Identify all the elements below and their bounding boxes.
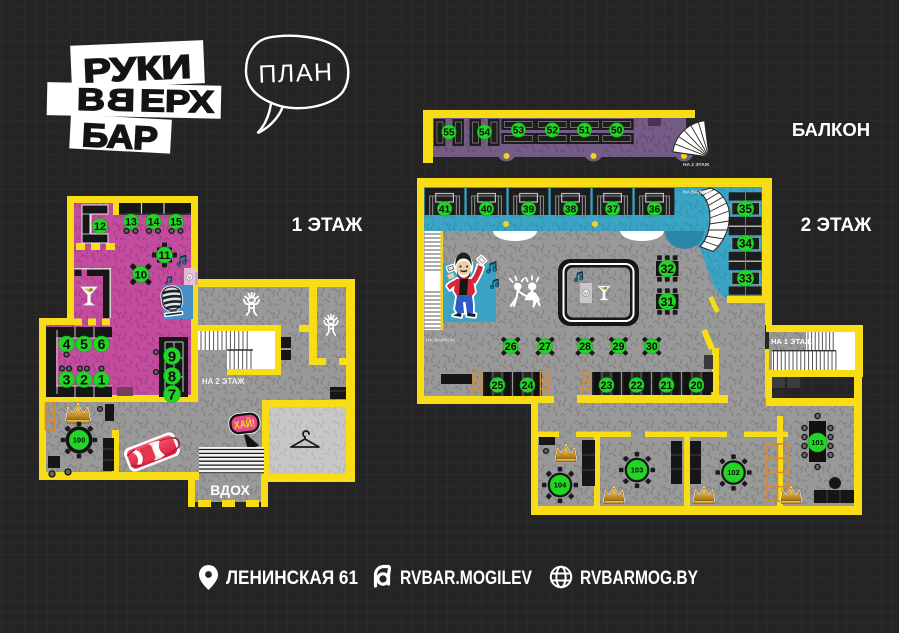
svg-text:В: В bbox=[107, 82, 136, 118]
svg-text:104: 104 bbox=[554, 481, 567, 490]
svg-text:52: 52 bbox=[547, 126, 559, 137]
svg-text:23: 23 bbox=[601, 380, 613, 392]
svg-text:50: 50 bbox=[611, 126, 623, 137]
svg-text:34: 34 bbox=[739, 238, 752, 251]
svg-text:БАР: БАР bbox=[81, 116, 159, 157]
svg-text:8: 8 bbox=[168, 369, 176, 385]
svg-text:НА БАЛКОН: НА БАЛКОН bbox=[426, 338, 455, 344]
svg-text:51: 51 bbox=[579, 126, 591, 137]
svg-text:НА БАЛКОН: НА БАЛКОН bbox=[683, 190, 712, 196]
svg-text:29: 29 bbox=[613, 341, 625, 353]
svg-text:53: 53 bbox=[513, 126, 525, 137]
svg-text:20: 20 bbox=[691, 380, 703, 392]
svg-text:ЛЕНИНСКАЯ 61: ЛЕНИНСКАЯ 61 bbox=[226, 568, 358, 589]
svg-text:103: 103 bbox=[631, 466, 644, 475]
svg-text:32: 32 bbox=[661, 262, 675, 276]
svg-text:13: 13 bbox=[125, 216, 137, 228]
svg-text:21: 21 bbox=[661, 380, 673, 392]
svg-text:41: 41 bbox=[439, 204, 451, 215]
svg-text:RVBAR.MOGILEV: RVBAR.MOGILEV bbox=[400, 568, 532, 589]
svg-text:7: 7 bbox=[168, 387, 176, 403]
svg-text:26: 26 bbox=[505, 341, 517, 353]
svg-text:3: 3 bbox=[63, 372, 71, 388]
svg-text:БАЛКОН: БАЛКОН bbox=[792, 119, 870, 140]
svg-text:НА 2 ЭТАЖ: НА 2 ЭТАЖ bbox=[202, 377, 245, 386]
svg-text:2: 2 bbox=[80, 372, 88, 388]
svg-text:25: 25 bbox=[492, 380, 504, 392]
svg-text:1: 1 bbox=[98, 372, 106, 388]
svg-text:9: 9 bbox=[168, 349, 176, 365]
svg-text:36: 36 bbox=[649, 204, 661, 215]
svg-text:5: 5 bbox=[80, 336, 88, 352]
svg-text:100: 100 bbox=[73, 436, 86, 445]
svg-text:12: 12 bbox=[94, 221, 106, 233]
svg-text:ВДОХ: ВДОХ bbox=[210, 482, 250, 498]
svg-text:38: 38 bbox=[565, 204, 577, 215]
svg-text:22: 22 bbox=[631, 380, 643, 392]
svg-text:37: 37 bbox=[607, 204, 619, 215]
svg-text:54: 54 bbox=[479, 128, 491, 139]
svg-text:27: 27 bbox=[539, 341, 551, 353]
svg-text:40: 40 bbox=[481, 204, 493, 215]
svg-text:11: 11 bbox=[158, 250, 171, 262]
svg-text:55: 55 bbox=[443, 128, 455, 139]
svg-text:15: 15 bbox=[170, 216, 182, 228]
svg-text:30: 30 bbox=[646, 341, 658, 353]
svg-text:35: 35 bbox=[739, 203, 752, 216]
svg-text:24: 24 bbox=[522, 380, 534, 392]
svg-text:14: 14 bbox=[148, 216, 160, 228]
svg-text:33: 33 bbox=[739, 272, 752, 285]
svg-text:ЕРХ: ЕРХ bbox=[140, 83, 215, 120]
svg-text:ПЛАН: ПЛАН bbox=[258, 58, 334, 89]
svg-text:101: 101 bbox=[811, 438, 824, 447]
svg-text:102: 102 bbox=[727, 468, 740, 477]
svg-text:НА 1 ЭТАЖ: НА 1 ЭТАЖ bbox=[771, 337, 812, 346]
svg-text:6: 6 bbox=[98, 336, 106, 352]
svg-text:28: 28 bbox=[579, 341, 591, 353]
svg-text:RVBARMOG.BY: RVBARMOG.BY bbox=[580, 568, 698, 589]
svg-text:НА 2 ЭТАЖ: НА 2 ЭТАЖ bbox=[683, 162, 710, 168]
svg-text:2 ЭТАЖ: 2 ЭТАЖ bbox=[801, 215, 872, 236]
svg-text:10: 10 bbox=[134, 269, 147, 281]
svg-text:39: 39 bbox=[523, 204, 535, 215]
svg-text:1 ЭТАЖ: 1 ЭТАЖ bbox=[292, 215, 363, 236]
svg-text:В: В bbox=[77, 82, 106, 118]
svg-text:4: 4 bbox=[63, 336, 71, 352]
svg-text:31: 31 bbox=[661, 295, 675, 309]
svg-text:ХАЙ!: ХАЙ! bbox=[233, 417, 255, 432]
